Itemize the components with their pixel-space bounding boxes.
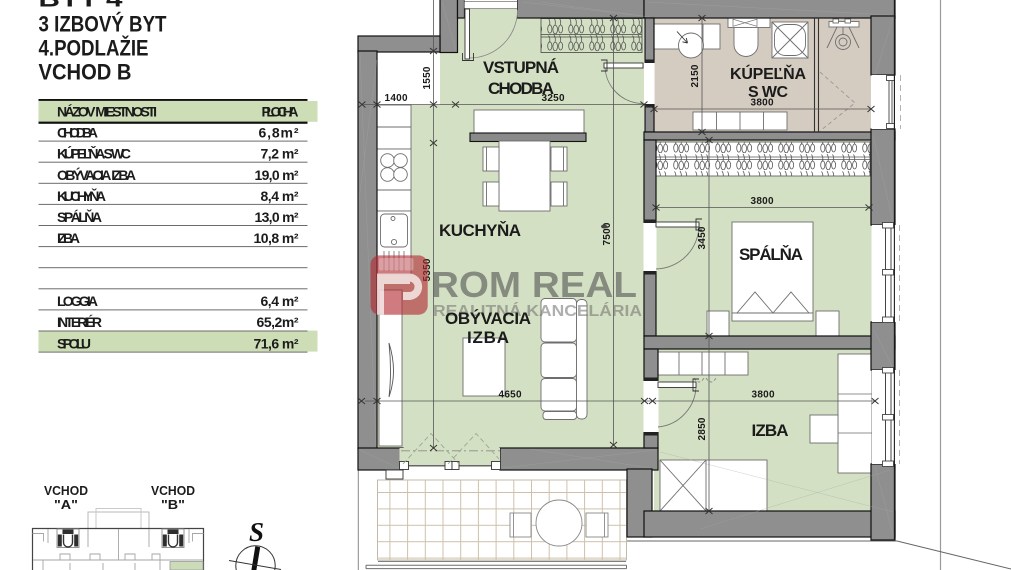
svg-text:3450: 3450 xyxy=(697,226,708,249)
svg-text:VCHOD: VCHOD xyxy=(151,483,195,498)
svg-text:LOGGIA: LOGGIA xyxy=(57,293,98,309)
svg-text:IZBA: IZBA xyxy=(57,230,80,246)
svg-text:4.PODLAŽIE: 4.PODLAŽIE xyxy=(39,36,149,61)
svg-text:KUCHYŇA: KUCHYŇA xyxy=(439,221,521,240)
svg-text:S: S xyxy=(249,517,264,547)
svg-text:VCHOD B: VCHOD B xyxy=(39,59,132,84)
svg-text:INTERIÉR: INTERIÉR xyxy=(57,314,102,330)
svg-text:S WC: S WC xyxy=(748,84,788,101)
svg-text:6,4 m²: 6,4 m² xyxy=(261,293,299,309)
svg-text:BYT 4: BYT 4 xyxy=(39,0,124,12)
svg-text:3800: 3800 xyxy=(751,196,774,207)
svg-text:1400: 1400 xyxy=(385,93,408,104)
svg-text:CHODBA: CHODBA xyxy=(488,79,554,98)
svg-text:6,8m²: 6,8m² xyxy=(259,125,299,141)
svg-text:IZBA: IZBA xyxy=(467,328,509,347)
svg-text:3 IZBOVÝ BYT: 3 IZBOVÝ BYT xyxy=(39,12,167,37)
svg-text:4650: 4650 xyxy=(499,390,522,401)
svg-text:CHODBA: CHODBA xyxy=(57,125,98,141)
svg-text:7,2 m²: 7,2 m² xyxy=(261,146,299,162)
svg-text:KÚPEĽŇA S WC: KÚPEĽŇA S WC xyxy=(57,145,131,162)
svg-text:IZBA: IZBA xyxy=(752,421,789,440)
svg-text:OBÝVACIA IZBA: OBÝVACIA IZBA xyxy=(57,166,136,183)
svg-text:VCHOD: VCHOD xyxy=(44,483,88,498)
svg-text:ROM REAL: ROM REAL xyxy=(431,264,637,305)
svg-text:"B": "B" xyxy=(161,497,185,512)
svg-text:NÁZOV MIESTNOSTI: NÁZOV MIESTNOSTI xyxy=(57,104,157,120)
svg-text:"A": "A" xyxy=(54,497,78,512)
svg-text:OBÝVACIA: OBÝVACIA xyxy=(445,309,531,328)
svg-text:13,0 m²: 13,0 m² xyxy=(255,209,299,225)
svg-text:3800: 3800 xyxy=(752,390,775,401)
svg-text:71,6 m²: 71,6 m² xyxy=(254,335,299,351)
svg-text:2850: 2850 xyxy=(697,417,708,440)
svg-text:10,8 m²: 10,8 m² xyxy=(254,230,299,246)
svg-text:KUCHYŇA: KUCHYŇA xyxy=(57,187,106,204)
svg-text:8,4 m²: 8,4 m² xyxy=(261,188,299,204)
svg-text:VSTUPNÁ: VSTUPNÁ xyxy=(483,58,559,77)
svg-text:SPÁLŇA: SPÁLŇA xyxy=(739,245,803,264)
svg-text:SPOLU: SPOLU xyxy=(57,335,91,351)
svg-text:19,0 m²: 19,0 m² xyxy=(255,167,299,183)
svg-text:KÚPEĽŇA: KÚPEĽŇA xyxy=(730,64,806,83)
svg-text:1550: 1550 xyxy=(422,66,433,89)
svg-text:2150: 2150 xyxy=(690,64,701,87)
svg-text:PLOCHA: PLOCHA xyxy=(262,104,299,120)
svg-text:65,2m²: 65,2m² xyxy=(257,314,299,330)
svg-text:SPÁLŇA: SPÁLŇA xyxy=(57,208,102,225)
